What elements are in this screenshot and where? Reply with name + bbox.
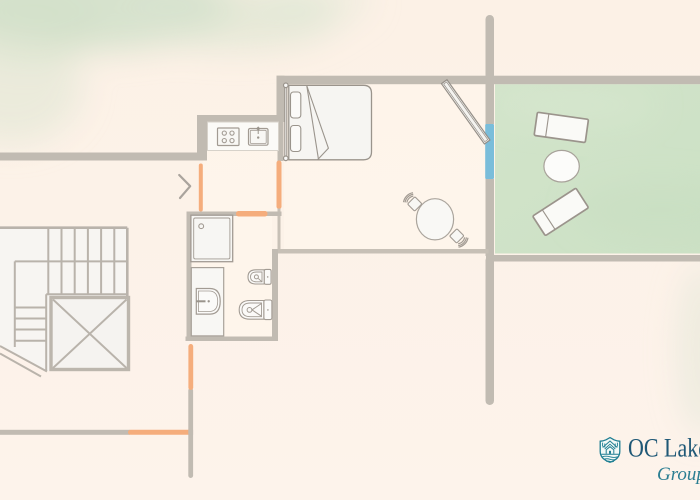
- svg-text:OC Lake: OC Lake: [628, 433, 700, 462]
- svg-text:Group: Group: [657, 464, 700, 485]
